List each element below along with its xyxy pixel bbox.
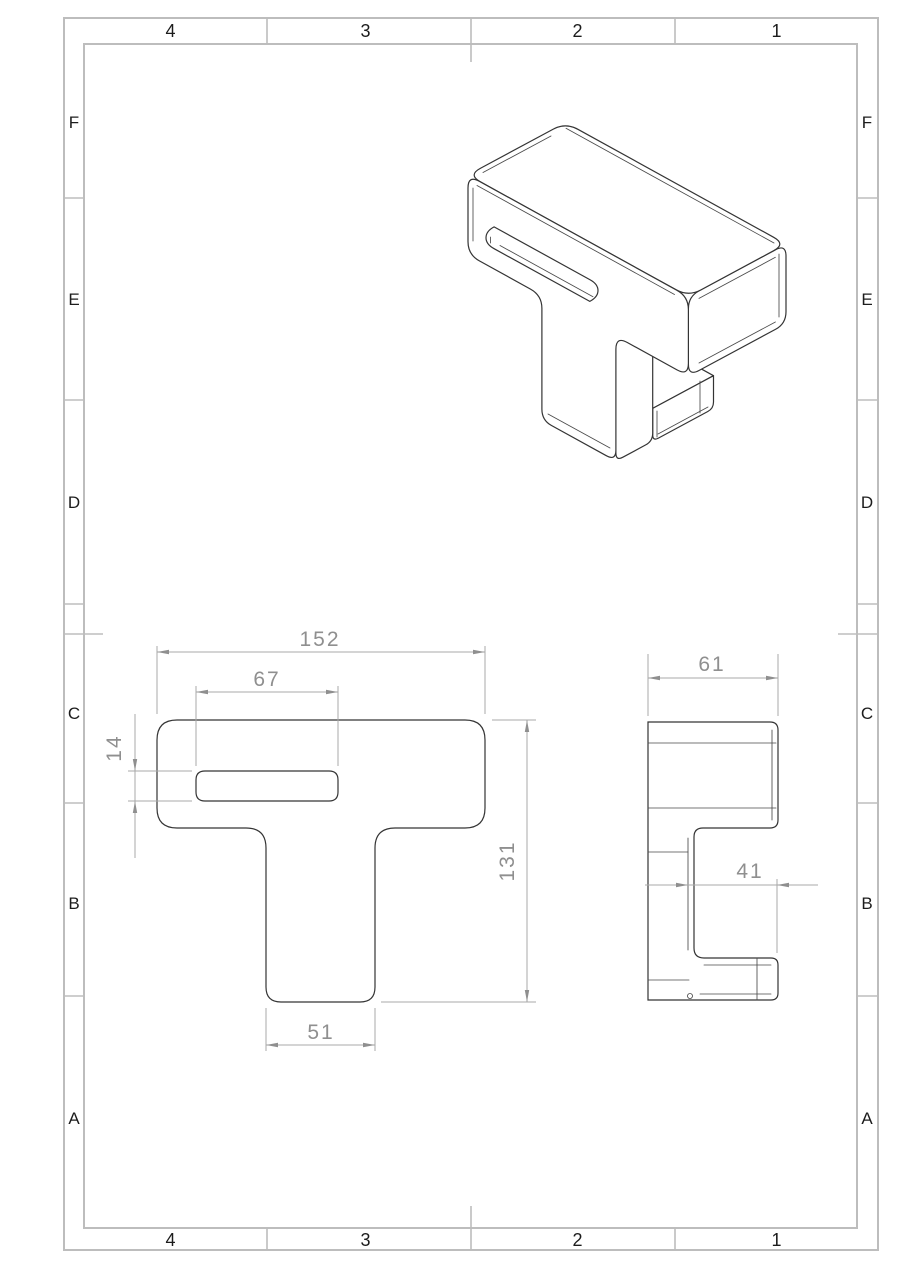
zone-label: D [861, 493, 873, 512]
zone-label: 3 [360, 1230, 371, 1250]
dim-slot-height[interactable]: 14 [103, 714, 192, 858]
drawing-canvas: 4 3 2 1 4 3 2 1 F E D C B A F E D C B A [0, 0, 900, 1273]
front-slot [196, 771, 338, 801]
dim-foot-length[interactable]: 41 [645, 860, 818, 953]
zone-label: E [861, 290, 872, 309]
zone-label: 3 [360, 21, 371, 41]
isometric-view[interactable] [468, 126, 786, 459]
zone-band-left: F E D C B A [68, 113, 80, 1128]
zone-label: 2 [572, 21, 583, 41]
zone-band-bottom: 4 3 2 1 [165, 1230, 782, 1250]
zone-label: F [862, 113, 872, 132]
zone-label: C [861, 704, 873, 723]
dim-overall-height[interactable]: 131 [381, 720, 536, 1002]
dim-text-51[interactable]: 51 [307, 1021, 334, 1044]
zone-label: 2 [572, 1230, 583, 1250]
front-outline [157, 720, 485, 1002]
dim-text-41[interactable]: 41 [736, 860, 763, 883]
zone-label: B [68, 894, 79, 913]
zone-label: 1 [771, 21, 782, 41]
drawing-sheet: 4 3 2 1 4 3 2 1 F E D C B A F E D C B A [0, 0, 900, 1273]
dim-stem-width[interactable]: 51 [266, 1008, 375, 1051]
dim-text-152[interactable]: 152 [299, 628, 340, 651]
zone-label: F [69, 113, 79, 132]
zone-band-right: F E D C B A [861, 113, 873, 1128]
front-view[interactable]: 152 67 14 131 [103, 628, 536, 1051]
zone-label: A [861, 1109, 873, 1128]
dim-overall-width[interactable]: 152 [157, 628, 485, 714]
dim-text-14[interactable]: 14 [103, 734, 126, 761]
zone-label: A [68, 1109, 80, 1128]
side-view[interactable]: 61 41 [645, 653, 818, 1000]
zone-label: B [861, 894, 872, 913]
dim-text-131[interactable]: 131 [496, 840, 519, 881]
zone-label: C [68, 704, 80, 723]
zone-label: 4 [165, 21, 176, 41]
dim-depth[interactable]: 61 [648, 653, 778, 716]
zone-label: D [68, 493, 80, 512]
dim-slot-width[interactable]: 67 [196, 668, 338, 766]
zone-label: 4 [165, 1230, 176, 1250]
dim-text-61[interactable]: 61 [698, 653, 725, 676]
zone-label: 1 [771, 1230, 782, 1250]
dim-text-67[interactable]: 67 [253, 668, 280, 691]
zone-band-top: 4 3 2 1 [165, 21, 782, 41]
zone-label: E [68, 290, 79, 309]
